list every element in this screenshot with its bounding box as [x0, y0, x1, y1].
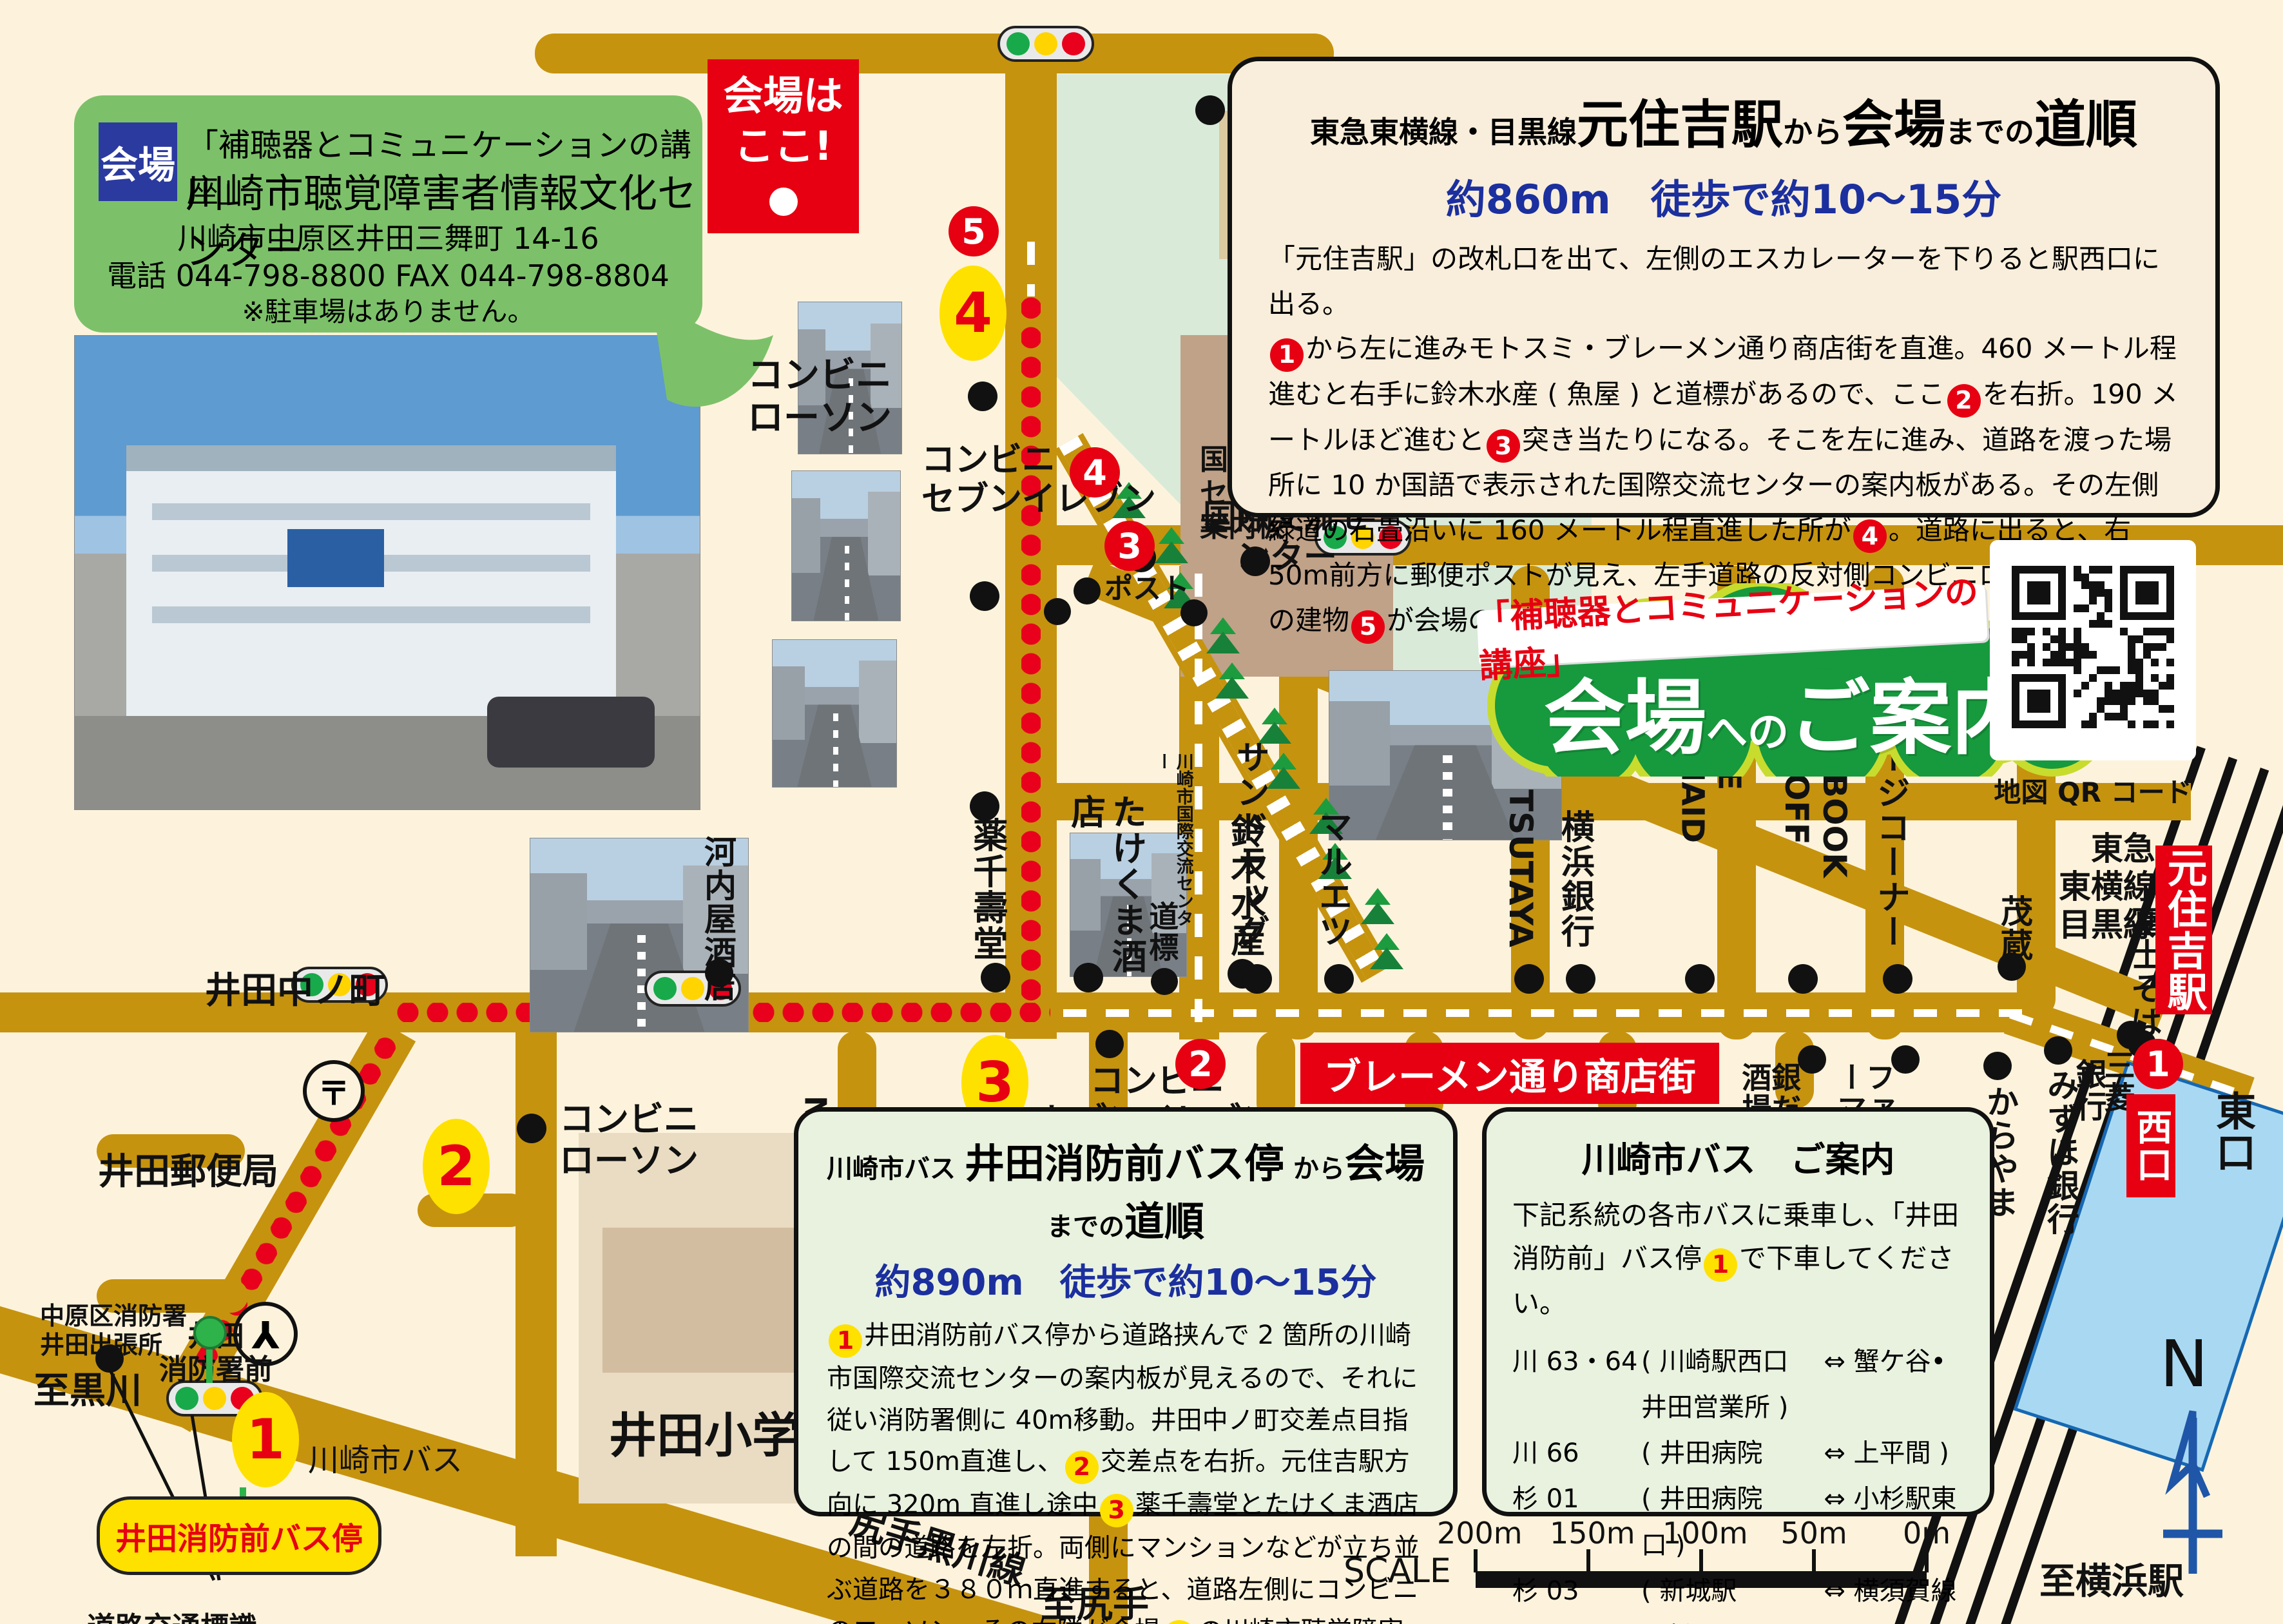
traffic-light: [997, 26, 1094, 62]
poi-dot: [1685, 964, 1715, 994]
label-michishirube: 道標: [1144, 901, 1179, 965]
street-photo: [791, 470, 901, 621]
poi-dot: [1242, 964, 1272, 994]
train-box-title: 東急東横線・目黒線元住吉駅から会場までの道順: [1268, 83, 2179, 158]
poi-dot: [981, 963, 1010, 992]
label-posuto: ポスト: [1104, 572, 1190, 606]
label-yakusenjudo: 薬千壽堂: [967, 817, 1008, 972]
poi-dot: [1195, 95, 1225, 125]
poi-dot: [1983, 1052, 2012, 1080]
label-lawson-west: コンビニ ローソン: [559, 1099, 698, 1181]
train-box-subtitle: 約860m 徒歩で約10～15分: [1268, 167, 2179, 225]
bus-route-row: 川 66( 井田病院⇔ 上平間 ): [1512, 1431, 1964, 1476]
poi-dot: [1566, 964, 1595, 994]
bus-directions-body: 1井田消防前バス停から道路挟んで 2 箇所の川崎市国際交流センターの案内板が見え…: [827, 1315, 1425, 1624]
poi-dot: [1095, 1030, 1124, 1058]
bus-guide-intro: 下記系統の各市バスに乗車し、「井田消防前」バス停1で下車してください。: [1512, 1194, 1964, 1325]
label-tsutaya: TSUTAYA: [1501, 789, 1539, 960]
marker-red-5: 5: [949, 206, 999, 256]
compass-n: N: [2160, 1326, 2208, 1402]
venue-dot: [769, 188, 798, 216]
label-ida-post-office: 井田郵便局: [98, 1151, 278, 1194]
bus-stop-sign: [193, 1316, 227, 1383]
tree-icon: [1360, 875, 1395, 923]
marker-red-4: 4: [1070, 447, 1120, 498]
label-takekuma: たけくま酒店: [1064, 794, 1146, 987]
compass-arrow-icon: [2155, 1400, 2226, 1580]
scale-tick-mark: [1474, 1549, 1478, 1572]
poi-dot: [1883, 964, 1912, 994]
label-sundrug: サンドラッグ: [1229, 740, 1269, 959]
bus-directions-subtitle: 約890m 徒歩で約10～15分: [827, 1253, 1425, 1306]
bus-stop-yellow-label: 井田消防前バス停: [115, 1513, 363, 1558]
bus-guide-box: 川崎市バス ご案内 下記系統の各市バスに乗車し、「井田消防前」バス停1で下車して…: [1482, 1107, 1994, 1516]
poi-dot: [1074, 577, 1101, 604]
poi-dot: [1151, 968, 1178, 995]
poi-dot: [968, 382, 997, 411]
marker-red-2: 2: [1175, 1039, 1226, 1089]
sign-caption-main: 道路交通標識: [87, 1611, 257, 1624]
venue-card: 会場 「補聴器とコミュニケーションの講座」 川崎市聴覚障害者情報文化センター 川…: [74, 95, 702, 333]
poi-dot: [1798, 1045, 1826, 1074]
label-maruetsu: マルエツ: [1312, 809, 1351, 958]
poi-dot: [1788, 964, 1818, 994]
tree-icon: [1206, 604, 1240, 652]
road-top: [535, 34, 1334, 73]
tree-icon: [1215, 650, 1249, 697]
bus-route-dots: [1021, 293, 1041, 1002]
train-directions-box: 東急東横線・目黒線元住吉駅から会場までの道順 約860m 徒歩で約10～15分 …: [1228, 57, 2220, 517]
bus-route-row: 杉 01( 井田病院⇔ 小杉駅東口 ): [1512, 1476, 1964, 1568]
label-west-exit: 西口: [2126, 1094, 2175, 1197]
street-photo: [772, 639, 897, 788]
here-box-line1: 会場は: [723, 72, 843, 119]
poi-dot: [1324, 964, 1354, 994]
venue-photo: [74, 335, 700, 810]
label-city-bus: 川崎市バス: [308, 1442, 463, 1479]
poi-dot: [1998, 952, 2026, 981]
poi-dot: [95, 1344, 124, 1373]
tree-icon: [1154, 514, 1189, 562]
poi-dot: [1180, 599, 1208, 626]
scale-tick-label: 200m: [1437, 1516, 1514, 1551]
tree-icon: [1266, 740, 1301, 788]
bus-guide-title: 川崎市バス ご案内: [1512, 1131, 1964, 1182]
poi-dot: [1514, 964, 1544, 994]
poi-dot: [517, 1114, 546, 1143]
label-lawson-top: コンビニ ローソン: [747, 354, 892, 440]
label-motosumiyoshi-station: 元住吉駅: [2155, 846, 2212, 1014]
tree-icon: [1369, 920, 1404, 968]
marker-yellow-4: 4: [939, 266, 1007, 361]
bremen-centerline: [1063, 1009, 2023, 1017]
poi-dot: [970, 581, 999, 611]
flyer-map-canvas: 5 4 4 3 2 3 2 1 1 井田中ノ町 〒 井田郵便局 コンビニ ローソ…: [0, 0, 2283, 1624]
poi-dot: [705, 959, 733, 987]
venue-address: 川崎市中原区井田三舞町 14-16: [74, 215, 702, 258]
bus-stop-yellow-box: 井田消防前バス停: [97, 1496, 381, 1575]
label-mitsubishi-col2: 銀行: [2070, 1058, 2106, 1136]
label-tokyu-lines: 東急 東横線 目黒線: [2059, 830, 2155, 944]
label-yokohama-bank: 横浜銀行: [1554, 809, 1594, 958]
bus-route-row: 杉 03( 新城駅⇔ 横須賀線小杉駅 ): [1512, 1569, 1964, 1624]
marker-red-1: 1: [2133, 1039, 2183, 1089]
bus-directions-title: 川崎市バス 井田消防前バス停 から会場までの道順: [827, 1131, 1425, 1247]
here-box-line2: ここ!: [734, 122, 832, 169]
here-box: 会場は ここ!: [708, 59, 859, 233]
walk-route-dash: [1195, 574, 1202, 1025]
marker-yellow-1: 1: [232, 1392, 299, 1487]
venue-tag: 会場: [99, 122, 177, 201]
venue-phone: 電話 044-798-8800 FAX 044-798-8804: [74, 253, 702, 295]
poi-dot: [1074, 963, 1103, 992]
poi-dot: [1240, 546, 1270, 576]
bus-route-row: 川 63・64( 川崎駅西口⇔ 蟹ケ谷•井田営業所 ): [1512, 1339, 1964, 1431]
qr-caption: 地図 QR コード: [1990, 777, 2196, 809]
label-book-off: BOOK OFF: [1777, 773, 1853, 960]
walk-route-dash: [1027, 242, 1035, 296]
marker-yellow-2: 2: [423, 1119, 490, 1214]
qr-code: [2012, 566, 2174, 728]
post-office-icon: 〒: [303, 1060, 365, 1122]
poi-dot: [2044, 1036, 2072, 1065]
bus-directions-box: 川崎市バス 井田消防前バス停 から会場までの道順 約890m 徒歩で約10～15…: [794, 1107, 1458, 1516]
bus-guide-routes: 川 63・64( 川崎駅西口⇔ 蟹ケ谷•井田営業所 )川 66( 井田病院⇔ 上…: [1512, 1339, 1964, 1624]
label-ida-nakanocho: 井田中ノ町: [205, 970, 385, 1012]
school-building: [602, 1228, 809, 1373]
marker-red-3: 3: [1104, 521, 1155, 571]
tree-icon: [1257, 695, 1292, 742]
sign-caption: 道路交通標識 川崎市国際交流センターの案内板 2 箇所: [87, 1578, 534, 1624]
poi-dot: [970, 791, 999, 821]
label-to-kurokawa: 至黒川: [34, 1370, 142, 1413]
label-seven-upper: コンビニ セブンイレブン: [921, 441, 1156, 520]
venue-note: ※駐車場はありません。: [74, 290, 702, 329]
label-east-exit: 東口: [2209, 1090, 2256, 1200]
poi-dot: [1044, 598, 1071, 625]
bremen-box: ブレーメン通り商店街: [1300, 1043, 1719, 1104]
